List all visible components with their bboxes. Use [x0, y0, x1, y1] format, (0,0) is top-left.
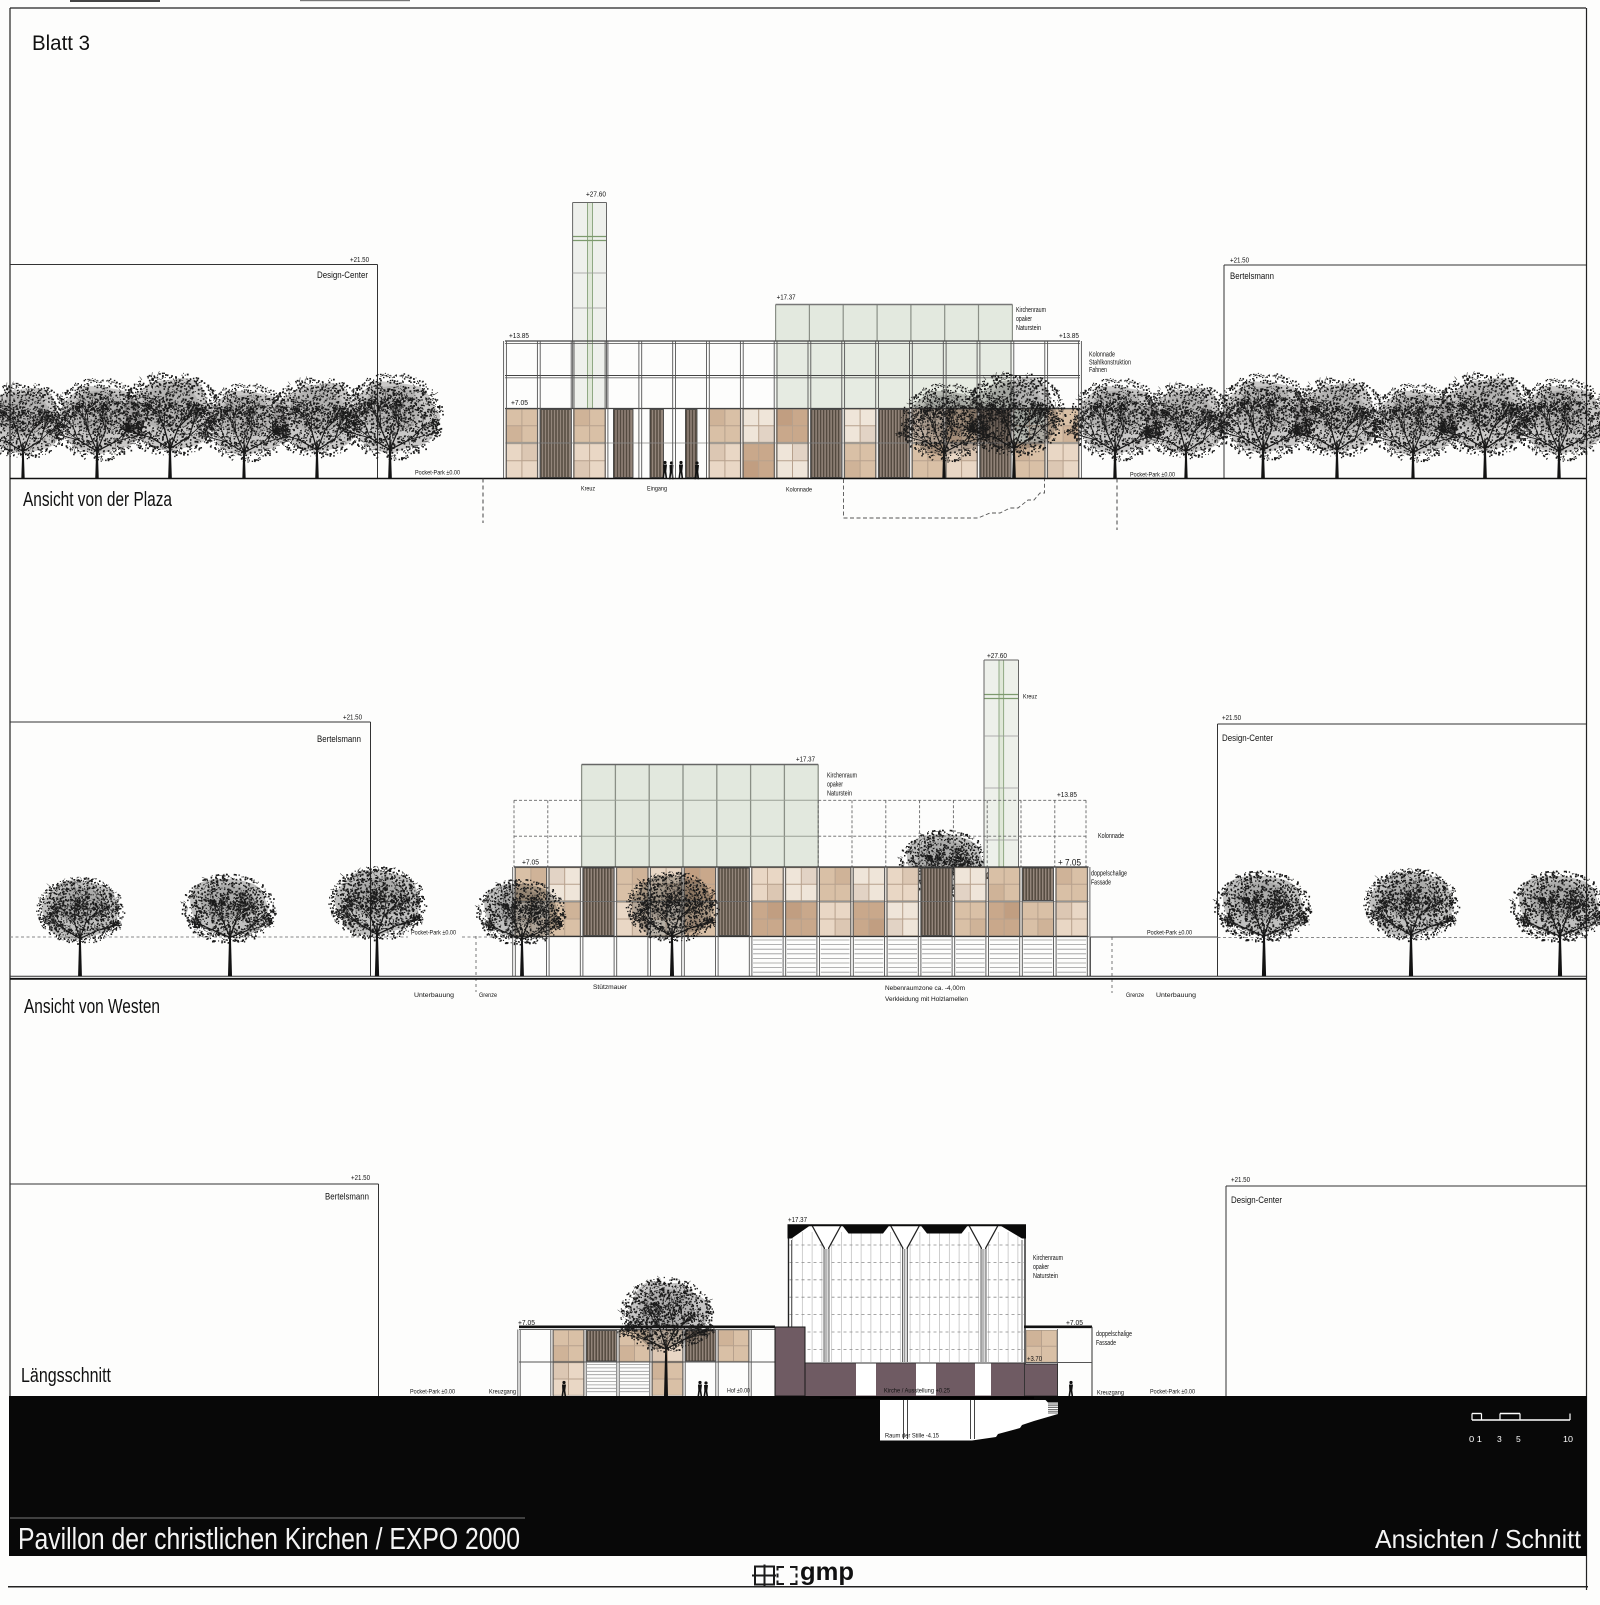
svg-text:Stützmauer: Stützmauer — [593, 984, 628, 991]
svg-text:10: 10 — [1563, 1434, 1573, 1444]
svg-text:+27.60: +27.60 — [987, 651, 1007, 660]
svg-text:Ansicht von der Plaza: Ansicht von der Plaza — [23, 488, 172, 511]
svg-text:Unterbauung: Unterbauung — [1156, 992, 1196, 999]
svg-text:opaker: opaker — [1016, 316, 1032, 323]
svg-text:+7.05: +7.05 — [518, 1318, 535, 1327]
svg-text:doppelschalige: doppelschalige — [1091, 871, 1127, 878]
svg-text:Bertelsmann: Bertelsmann — [325, 1192, 369, 1203]
svg-text:Pocket-Park ±0.00: Pocket-Park ±0.00 — [411, 930, 456, 937]
svg-text:Stahlkonstruktion: Stahlkonstruktion — [1089, 360, 1131, 367]
svg-text:+13.85: +13.85 — [509, 331, 529, 340]
svg-text:+21.50: +21.50 — [343, 713, 362, 722]
svg-text:+17.37: +17.37 — [788, 1215, 807, 1224]
svg-text:+7.05: +7.05 — [511, 398, 528, 407]
svg-text:Hof ±0.00: Hof ±0.00 — [727, 1388, 750, 1395]
svg-text:Raum der Stille -4.15: Raum der Stille -4.15 — [885, 1433, 939, 1440]
svg-text:+21.50: +21.50 — [1231, 1175, 1250, 1184]
svg-text:Pocket-Park ±0.00: Pocket-Park ±0.00 — [1147, 930, 1192, 937]
svg-text:Kirchenraum: Kirchenraum — [1033, 1255, 1063, 1262]
svg-text:Kolonnade: Kolonnade — [1098, 833, 1124, 840]
svg-text:Kirchenraum: Kirchenraum — [827, 773, 857, 780]
svg-text:Bertelsmann: Bertelsmann — [1230, 271, 1274, 282]
svg-text:+ 7.05: + 7.05 — [1058, 858, 1081, 869]
svg-text:+21.50: +21.50 — [1230, 256, 1249, 265]
svg-text:+17.37: +17.37 — [796, 755, 815, 764]
svg-text:Kolonnade: Kolonnade — [786, 487, 812, 494]
svg-text:Design-Center: Design-Center — [1222, 733, 1273, 744]
svg-text:Grenze: Grenze — [1126, 992, 1144, 999]
svg-text:Kreuz: Kreuz — [581, 486, 595, 493]
svg-text:Eingang: Eingang — [647, 486, 667, 493]
svg-text:+21.50: +21.50 — [350, 255, 369, 264]
svg-text:opaker: opaker — [1033, 1264, 1049, 1271]
svg-text:Fassade: Fassade — [1091, 880, 1111, 887]
svg-text:+7.05: +7.05 — [522, 858, 539, 867]
svg-text:+13.85: +13.85 — [1059, 331, 1079, 340]
svg-text:3: 3 — [1497, 1434, 1502, 1444]
svg-text:Blatt 3: Blatt 3 — [32, 32, 90, 55]
svg-text:Nebenraumzone ca. -4,00m: Nebenraumzone ca. -4,00m — [885, 985, 965, 992]
svg-text:Ansichten / Schnitt: Ansichten / Schnitt — [1375, 1524, 1582, 1554]
svg-text:Längsschnitt: Längsschnitt — [21, 1364, 111, 1387]
svg-text:Naturstein: Naturstein — [827, 791, 852, 798]
svg-text:Kolonnade: Kolonnade — [1089, 352, 1115, 359]
svg-text:Kirche / Ausstellung +0.25: Kirche / Ausstellung +0.25 — [884, 1388, 950, 1395]
svg-text:Kirchenraum: Kirchenraum — [1016, 307, 1046, 314]
svg-text:doppelschalige: doppelschalige — [1096, 1331, 1132, 1338]
svg-text:Naturstein: Naturstein — [1016, 325, 1041, 332]
svg-text:Fahnen: Fahnen — [1089, 367, 1107, 374]
svg-text:Pocket-Park ±0.00: Pocket-Park ±0.00 — [410, 1389, 455, 1396]
svg-text:0 1: 0 1 — [1469, 1434, 1482, 1444]
svg-text:Kreuz: Kreuz — [1023, 694, 1037, 701]
svg-text:Kreuzgang: Kreuzgang — [489, 1389, 516, 1396]
svg-text:Grenze: Grenze — [479, 992, 497, 999]
svg-text:Pavillon der christlichen Kirc: Pavillon der christlichen Kirchen / EXPO… — [18, 1521, 520, 1556]
svg-text:Pocket-Park ±0.00: Pocket-Park ±0.00 — [1150, 1389, 1195, 1396]
svg-text:Fassade: Fassade — [1096, 1340, 1116, 1347]
svg-text:Pocket-Park ±0.00: Pocket-Park ±0.00 — [1130, 472, 1175, 479]
svg-text:+13.85: +13.85 — [1057, 790, 1077, 799]
svg-text:+17.37: +17.37 — [777, 293, 796, 302]
svg-text:gmp: gmp — [800, 1558, 854, 1586]
svg-text:Design-Center: Design-Center — [1231, 1195, 1282, 1206]
svg-text:+21.50: +21.50 — [351, 1173, 370, 1182]
svg-text:+3.70: +3.70 — [1027, 1354, 1042, 1363]
svg-text:opaker: opaker — [827, 782, 843, 789]
svg-text:+21.50: +21.50 — [1222, 713, 1241, 722]
svg-text:Unterbauung: Unterbauung — [414, 992, 454, 999]
svg-text:Verkleidung mit Holzlamellen: Verkleidung mit Holzlamellen — [885, 996, 968, 1003]
svg-text:Naturstein: Naturstein — [1033, 1273, 1058, 1280]
svg-text:Kreuzgang: Kreuzgang — [1097, 1390, 1124, 1397]
svg-text:Bertelsmann: Bertelsmann — [317, 734, 361, 745]
svg-text:Design-Center: Design-Center — [317, 270, 368, 281]
svg-text:+27.60: +27.60 — [586, 190, 606, 199]
svg-text:5: 5 — [1516, 1434, 1521, 1444]
svg-text:Ansicht von Westen: Ansicht von Westen — [24, 995, 160, 1018]
svg-text:+7.05: +7.05 — [1066, 1318, 1083, 1327]
svg-text:Pocket-Park ±0.00: Pocket-Park ±0.00 — [415, 470, 460, 477]
